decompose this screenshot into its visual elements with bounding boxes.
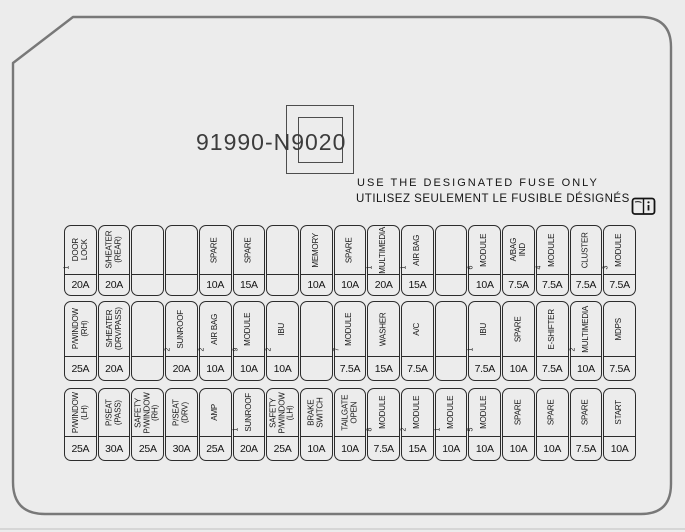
fuse-amp-area: 10A xyxy=(267,356,298,380)
fuse-cell: BRAKE SWITCH10A xyxy=(300,388,333,461)
fuse-cell xyxy=(165,225,198,296)
fuse-label-area: E-SHIFTER xyxy=(537,302,568,356)
fuse-amp-rating: 20A xyxy=(105,363,123,375)
fuse-label-area: 1MODULE xyxy=(436,389,467,436)
fuse-cell: SPARE10A xyxy=(502,301,535,381)
fuse-amp-area: 7.5A xyxy=(604,274,635,295)
fuse-label-area: SPARE xyxy=(200,226,231,274)
fuse-footnote-number: 2 xyxy=(569,348,576,352)
fuse-label: MODULE xyxy=(379,396,388,429)
fuse-amp-area: 25A xyxy=(267,436,298,460)
fuse-label: SPARE xyxy=(211,237,220,263)
fuse-label-area xyxy=(301,302,332,356)
notice-line-fr-row: UTILISEZ SEULEMENT LE FUSIBLE DÉSIGNÉS xyxy=(356,193,656,216)
fuse-label: A/BAG IND xyxy=(510,238,527,261)
fuse-label-area: BRAKE SWITCH xyxy=(301,389,332,436)
fuse-footnote-number: 1 xyxy=(434,428,441,432)
fuse-footnote-number: 4 xyxy=(535,266,542,270)
fuse-cell: 2IBU10A xyxy=(266,301,299,381)
fuse-label: WASHER xyxy=(379,312,388,346)
fuse-amp-area: 20A xyxy=(166,356,197,380)
fuse-label: MODULE xyxy=(447,396,456,429)
fuse-footnote-number: 1 xyxy=(232,428,239,432)
fuse-amp-rating: 15A xyxy=(408,279,426,291)
fuse-cell xyxy=(131,301,164,381)
fuse-label-area: 2SUNROOF xyxy=(166,302,197,356)
fuse-label-area xyxy=(132,302,163,356)
fuse-label-area: 8MODULE xyxy=(368,389,399,436)
fuse-amp-rating: 10A xyxy=(307,443,325,455)
fuse-amp-area xyxy=(436,356,467,380)
fuse-cell: 7MODULE7.5A xyxy=(334,301,367,381)
fuse-amp-area: 7.5A xyxy=(604,356,635,380)
fuse-amp-area: 30A xyxy=(99,436,130,460)
fuse-cell: P/SEAT (DRV)30A xyxy=(165,388,198,461)
fuse-label: MODULE xyxy=(346,312,355,345)
fuse-cell: 1MULTIMEDIA20A xyxy=(367,225,400,296)
fuse-label-area: 2AIR BAG xyxy=(200,302,231,356)
fuse-row: 1DOOR LOCK20AS/HEATER (REAR)20ASPARE10AS… xyxy=(64,225,636,296)
fuse-amp-rating: 7.5A xyxy=(373,443,393,455)
fuse-label: P/SEAT (PASS) xyxy=(105,399,122,426)
fuse-cell: P/WINDOW (LH)25A xyxy=(64,388,97,461)
fuse-label: TAILGATE OPEN xyxy=(341,395,358,431)
fuse-cell: SPARE15A xyxy=(233,225,266,296)
fuse-amp-rating: 7.5A xyxy=(340,363,360,375)
fuse-amp-area: 20A xyxy=(99,356,130,380)
fuse-label-area: TAILGATE OPEN xyxy=(335,389,366,436)
page-edge-line xyxy=(0,528,685,530)
fuse-cell: 2SUNROOF20A xyxy=(165,301,198,381)
fuse-label-area: A/C xyxy=(402,302,433,356)
fuse-label-area: 1SUNROOF xyxy=(234,389,265,436)
fuse-amp-rating: 10A xyxy=(307,279,325,291)
fuse-label-area: MDPS xyxy=(604,302,635,356)
fuse-label-area: 5MODULE xyxy=(469,389,500,436)
fuse-label-area: SPARE xyxy=(537,389,568,436)
fuse-label-area: P/SEAT (DRV) xyxy=(166,389,197,436)
fuse-label: MODULE xyxy=(480,233,489,266)
fuse-label-area xyxy=(436,302,467,356)
fuse-footnote-number: 7 xyxy=(333,348,340,352)
fuse-amp-rating: 7.5A xyxy=(407,363,427,375)
fuse-amp-area xyxy=(301,356,332,380)
fuse-amp-area: 10A xyxy=(571,356,602,380)
fuse-cell: 1AIR BAG15A xyxy=(401,225,434,296)
fuse-label: SAFETY P/WINDOW (RH) xyxy=(135,392,161,433)
fuse-footnote-number: 1 xyxy=(367,266,374,270)
fuse-label: MODULE xyxy=(615,233,624,266)
fuse-label: MULTIMEDIA xyxy=(582,306,591,353)
fuse-amp-rating: 10A xyxy=(543,443,561,455)
fuse-cell: P/WINDOW (RH)25A xyxy=(64,301,97,381)
fuse-label: SPARE xyxy=(514,316,523,342)
fuse-label: CLUSTER xyxy=(582,232,591,268)
fuse-label-area: SPARE xyxy=(503,302,534,356)
fuse-label-area: SPARE xyxy=(335,226,366,274)
fuse-amp-area xyxy=(132,356,163,380)
fuse-label-area: 9MODULE xyxy=(234,302,265,356)
fuse-amp-area: 20A xyxy=(99,274,130,295)
fuse-amp-rating: 7.5A xyxy=(609,363,629,375)
fuse-label: E-SHIFTER xyxy=(548,309,557,349)
fuse-label-area: SPARE xyxy=(503,389,534,436)
fuse-label-area: 4MODULE xyxy=(537,226,568,274)
fuse-label-area: 1DOOR LOCK xyxy=(65,226,96,274)
fuse-amp-area: 7.5A xyxy=(503,274,534,295)
fuse-label-area: P/WINDOW (LH) xyxy=(65,389,96,436)
fuse-cell: P/SEAT (PASS)30A xyxy=(98,388,131,461)
fuse-label: AIR BAG xyxy=(211,313,220,344)
fuse-cell: MDPS7.5A xyxy=(603,301,636,381)
fuse-amp-rating: 20A xyxy=(240,443,258,455)
fuse-label-area: 1AIR BAG xyxy=(402,226,433,274)
fuse-amp-area: 7.5A xyxy=(469,356,500,380)
fuse-label: MULTIMEDIA xyxy=(379,227,388,274)
fuse-amp-area: 7.5A xyxy=(402,356,433,380)
fuse-label-area: AMP xyxy=(200,389,231,436)
fuse-label-area: P/SEAT (PASS) xyxy=(99,389,130,436)
fuse-label: P/SEAT (DRV) xyxy=(173,399,190,426)
fuse-amp-area: 10A xyxy=(503,436,534,460)
fuse-amp-area: 10A xyxy=(335,436,366,460)
fuse-amp-area: 15A xyxy=(368,356,399,380)
fuse-label-area: A/BAG IND xyxy=(503,226,534,274)
fuse-cell: SAFETY P/WINDOW (RH)25A xyxy=(131,388,164,461)
fuse-amp-rating: 20A xyxy=(105,279,123,291)
fuse-cell: 3MODULE7.5A xyxy=(603,225,636,296)
fuse-cell: 2MODULE15A xyxy=(401,388,434,461)
fuse-amp-area: 10A xyxy=(604,436,635,460)
fuse-amp-rating: 20A xyxy=(71,279,89,291)
fuse-label: MDPS xyxy=(615,318,624,340)
fuse-label-area: SPARE xyxy=(571,389,602,436)
fuse-amp-rating: 10A xyxy=(510,443,528,455)
fuse-amp-rating: 20A xyxy=(173,363,191,375)
part-number: 91990-N9020 xyxy=(196,129,346,156)
fuse-amp-rating: 7.5A xyxy=(609,279,629,291)
fuse-cell: A/C7.5A xyxy=(401,301,434,381)
fuse-amp-rating: 25A xyxy=(139,443,157,455)
fuse-amp-area: 7.5A xyxy=(537,274,568,295)
fuse-amp-rating: 20A xyxy=(375,279,393,291)
fuse-label: MODULE xyxy=(480,396,489,429)
fuse-amp-rating: 25A xyxy=(274,443,292,455)
fuse-footnote-number: 3 xyxy=(603,266,610,270)
fuse-amp-area: 10A xyxy=(301,274,332,295)
fuse-amp-rating: 25A xyxy=(71,363,89,375)
fuse-cell: MEMORY10A xyxy=(300,225,333,296)
fuse-amp-area: 7.5A xyxy=(368,436,399,460)
fuse-label: S/HEATER (DRV/PASS) xyxy=(105,307,122,350)
fuse-amp-area: 10A xyxy=(436,436,467,460)
fuse-amp-area xyxy=(436,274,467,295)
fuse-amp-area xyxy=(132,274,163,295)
fuse-label-area: 2IBU xyxy=(267,302,298,356)
fuse-label: SUNROOF xyxy=(177,310,186,349)
fuse-cell: 1IBU7.5A xyxy=(468,301,501,381)
fuse-amp-rating: 10A xyxy=(510,363,528,375)
notice-line-en: USE THE DESIGNATED FUSE ONLY xyxy=(357,177,599,189)
fuse-label: MODULE xyxy=(548,233,557,266)
fuse-label-area: SAFETY P/WINDOW (LH) xyxy=(267,389,298,436)
fuse-amp-rating: 10A xyxy=(274,363,292,375)
fuse-label-area: 3MODULE xyxy=(604,226,635,274)
fuse-label-area: 6MODULE xyxy=(469,226,500,274)
fuse-amp-area: 10A xyxy=(503,356,534,380)
fuse-amp-rating: 10A xyxy=(341,443,359,455)
fuse-label-area xyxy=(132,226,163,274)
fuse-footnote-number: 1 xyxy=(63,266,70,270)
fuse-row: P/WINDOW (LH)25AP/SEAT (PASS)30ASAFETY P… xyxy=(64,388,636,461)
fuse-cell: SPARE10A xyxy=(502,388,535,461)
fuse-amp-area: 10A xyxy=(469,274,500,295)
fuse-label: IBU xyxy=(480,323,489,336)
fuse-label-area: 1MULTIMEDIA xyxy=(368,226,399,274)
fuse-footnote-number: 2 xyxy=(165,348,172,352)
fuse-label: IBU xyxy=(278,323,287,336)
fuse-cell xyxy=(435,301,468,381)
fuse-amp-area: 20A xyxy=(234,436,265,460)
fuse-amp-area: 20A xyxy=(368,274,399,295)
fuse-label-area: 1IBU xyxy=(469,302,500,356)
fuse-label: MEMORY xyxy=(312,233,321,268)
fuse-amp-area: 10A xyxy=(200,274,231,295)
fuse-amp-rating: 10A xyxy=(240,363,258,375)
fuse-cell: 6MODULE10A xyxy=(468,225,501,296)
fuse-label: SPARE xyxy=(245,237,254,263)
fuse-amp-area: 15A xyxy=(402,436,433,460)
fuse-footnote-number: 6 xyxy=(468,266,475,270)
fuse-cell: 1MODULE10A xyxy=(435,388,468,461)
fuse-label: SUNROOF xyxy=(245,393,254,432)
fuse-cell: SPARE10A xyxy=(334,225,367,296)
fuse-footnote-number: 1 xyxy=(400,266,407,270)
fuse-amp-rating: 10A xyxy=(577,363,595,375)
fuse-label-area: CLUSTER xyxy=(571,226,602,274)
fuse-cell: 5MODULE10A xyxy=(468,388,501,461)
fuse-footnote-number: 8 xyxy=(367,428,374,432)
fuse-label-area: P/WINDOW (RH) xyxy=(65,302,96,356)
fuse-label: SAFETY P/WINDOW (LH) xyxy=(270,392,296,433)
fuse-cell: 1SUNROOF20A xyxy=(233,388,266,461)
owners-manual-book-icon xyxy=(631,197,656,216)
fuse-label: MODULE xyxy=(413,396,422,429)
fuse-label-area: WASHER xyxy=(368,302,399,356)
fuse-cell: S/HEATER (DRV/PASS)20A xyxy=(98,301,131,381)
fuse-footnote-number: 2 xyxy=(266,348,273,352)
fuse-amp-area: 10A xyxy=(469,436,500,460)
fuse-footnote-number: 5 xyxy=(468,428,475,432)
fuse-label-area xyxy=(267,226,298,274)
fuse-label-area: 7MODULE xyxy=(335,302,366,356)
fuse-amp-rating: 10A xyxy=(611,443,629,455)
fuse-cell: E-SHIFTER7.5A xyxy=(536,301,569,381)
fuse-label-area: START xyxy=(604,389,635,436)
fuse-label: P/WINDOW (LH) xyxy=(72,392,89,433)
fuse-label-area: SAFETY P/WINDOW (RH) xyxy=(132,389,163,436)
fuse-amp-area: 7.5A xyxy=(571,436,602,460)
fuse-amp-rating: 10A xyxy=(442,443,460,455)
fuse-amp-rating: 10A xyxy=(476,443,494,455)
fuse-cell: S/HEATER (REAR)20A xyxy=(98,225,131,296)
fuse-amp-rating: 7.5A xyxy=(542,363,562,375)
fuse-amp-area: 25A xyxy=(200,436,231,460)
fuse-cell: SAFETY P/WINDOW (LH)25A xyxy=(266,388,299,461)
fuse-amp-rating: 25A xyxy=(71,443,89,455)
fuse-amp-rating: 15A xyxy=(375,363,393,375)
fuse-label: SPARE xyxy=(582,400,591,426)
fuse-amp-area xyxy=(267,274,298,295)
fuse-label: SPARE xyxy=(514,400,523,426)
fuse-cell: CLUSTER7.5A xyxy=(570,225,603,296)
fuse-amp-area: 25A xyxy=(132,436,163,460)
fuse-footnote-number: 2 xyxy=(198,348,205,352)
fuse-amp-area: 25A xyxy=(65,356,96,380)
fuse-cell: WASHER15A xyxy=(367,301,400,381)
fuse-amp-rating: 10A xyxy=(341,279,359,291)
fuse-cell: A/BAG IND7.5A xyxy=(502,225,535,296)
fuse-footnote-number: 2 xyxy=(400,428,407,432)
fuse-box-diagram: 91990-N9020 USE THE DESIGNATED FUSE ONLY… xyxy=(0,0,685,532)
fuse-amp-area: 10A xyxy=(234,356,265,380)
fuse-amp-area xyxy=(166,274,197,295)
fuse-cell: TAILGATE OPEN10A xyxy=(334,388,367,461)
fuse-label: SPARE xyxy=(346,237,355,263)
fuse-cell: 1DOOR LOCK20A xyxy=(64,225,97,296)
fuse-amp-rating: 10A xyxy=(206,363,224,375)
fuse-amp-area: 10A xyxy=(537,436,568,460)
fuse-amp-rating: 7.5A xyxy=(542,279,562,291)
fuse-amp-rating: 7.5A xyxy=(475,363,495,375)
fuse-cell: 8MODULE7.5A xyxy=(367,388,400,461)
fuse-cell: START10A xyxy=(603,388,636,461)
fuse-label-area: S/HEATER (REAR) xyxy=(99,226,130,274)
fuse-label: BRAKE SWITCH xyxy=(308,397,325,427)
fuse-cell xyxy=(300,301,333,381)
fuse-cell: 2MULTIMEDIA10A xyxy=(570,301,603,381)
fuse-cell: AMP25A xyxy=(199,388,232,461)
fuse-row: P/WINDOW (RH)25AS/HEATER (DRV/PASS)20A2S… xyxy=(64,301,636,381)
fuse-label: A/C xyxy=(413,323,422,336)
fuse-label-area: 2MULTIMEDIA xyxy=(571,302,602,356)
fuse-label-area: S/HEATER (DRV/PASS) xyxy=(99,302,130,356)
fuse-amp-area: 25A xyxy=(65,436,96,460)
fuse-cell: 2AIR BAG10A xyxy=(199,301,232,381)
fuse-amp-area: 10A xyxy=(301,436,332,460)
fuse-footnote-number: 9 xyxy=(232,348,239,352)
fuse-amp-area: 10A xyxy=(335,274,366,295)
fuse-label-area: 2MODULE xyxy=(402,389,433,436)
fuse-label: AMP xyxy=(211,404,220,421)
fuse-amp-rating: 10A xyxy=(206,279,224,291)
fuse-label: P/WINDOW (RH) xyxy=(72,308,89,349)
fuse-amp-rating: 7.5A xyxy=(576,279,596,291)
fuse-cell xyxy=(131,225,164,296)
fuse-cell: 4MODULE7.5A xyxy=(536,225,569,296)
fuse-amp-area: 7.5A xyxy=(537,356,568,380)
fuse-amp-rating: 15A xyxy=(408,443,426,455)
fuse-amp-rating: 25A xyxy=(206,443,224,455)
fuse-cell: SPARE10A xyxy=(199,225,232,296)
fuse-footnote-number: 1 xyxy=(468,348,475,352)
fuse-amp-rating: 10A xyxy=(476,279,494,291)
fuse-cell xyxy=(266,225,299,296)
fuse-label: SPARE xyxy=(548,400,557,426)
fuse-label-area: SPARE xyxy=(234,226,265,274)
fuse-amp-area: 15A xyxy=(234,274,265,295)
fuse-amp-area: 20A xyxy=(65,274,96,295)
fuse-label-area xyxy=(436,226,467,274)
fuse-label: START xyxy=(615,400,624,425)
fuse-label: DOOR LOCK xyxy=(72,238,89,261)
notice-line-fr: UTILISEZ SEULEMENT LE FUSIBLE DÉSIGNÉS xyxy=(356,193,630,205)
fuse-cell: 9MODULE10A xyxy=(233,301,266,381)
fuse-amp-rating: 30A xyxy=(173,443,191,455)
fuse-amp-rating: 30A xyxy=(105,443,123,455)
fuse-label: MODULE xyxy=(245,312,254,345)
fuse-label: AIR BAG xyxy=(413,234,422,265)
fuse-amp-area: 30A xyxy=(166,436,197,460)
fuse-amp-area: 15A xyxy=(402,274,433,295)
fuse-amp-rating: 7.5A xyxy=(576,443,596,455)
fuse-label-area: MEMORY xyxy=(301,226,332,274)
fuse-cell: SPARE7.5A xyxy=(570,388,603,461)
fuse-cell xyxy=(435,225,468,296)
fuse-amp-area: 10A xyxy=(200,356,231,380)
fuse-label: S/HEATER (REAR) xyxy=(105,231,122,269)
fuse-amp-rating: 15A xyxy=(240,279,258,291)
fuse-label-area xyxy=(166,226,197,274)
fuse-amp-area: 7.5A xyxy=(335,356,366,380)
fuse-amp-area: 7.5A xyxy=(571,274,602,295)
fuse-amp-rating: 7.5A xyxy=(508,279,528,291)
fuse-cell: SPARE10A xyxy=(536,388,569,461)
